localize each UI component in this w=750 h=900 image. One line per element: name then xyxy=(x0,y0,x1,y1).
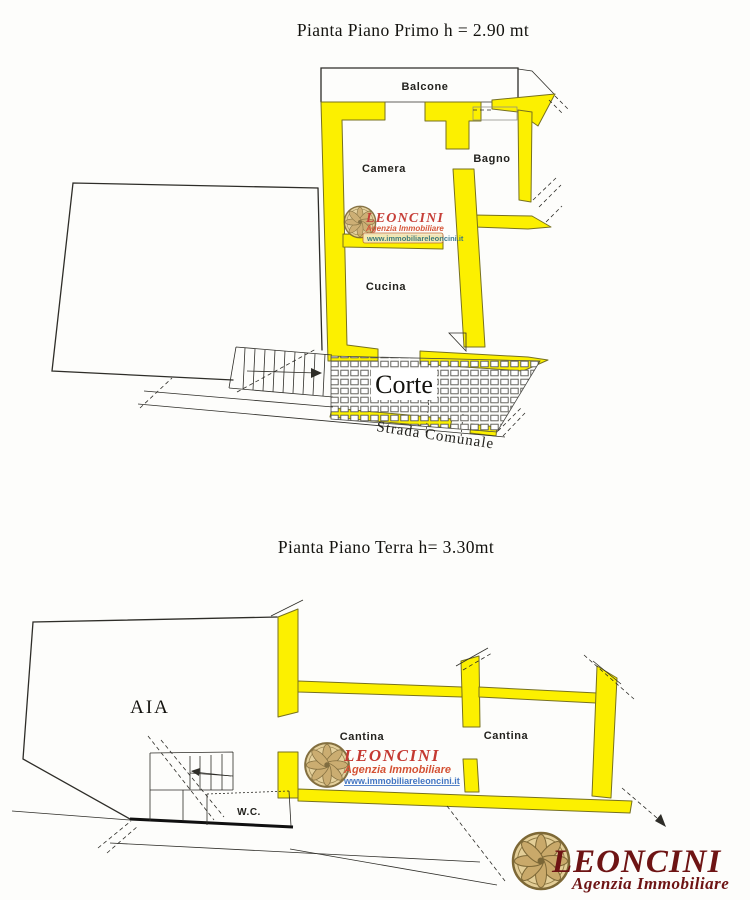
room-label-corte: Corte xyxy=(375,370,433,399)
staircase-ground-floor xyxy=(148,736,233,821)
room-label-cantina-1: Cantina xyxy=(340,731,385,743)
room-label-wc: W.C. xyxy=(237,807,261,818)
rosette-logo-icon xyxy=(305,743,349,787)
room-label-cucina: Cucina xyxy=(366,281,407,293)
ground-floor-title: Pianta Piano Terra h= 3.30mt xyxy=(278,537,494,557)
room-label-aia: AIA xyxy=(130,697,170,718)
room-label-balcone: Balcone xyxy=(402,81,449,93)
room-label-cantina-2: Cantina xyxy=(484,730,529,742)
first-floor-title: Pianta Piano Primo h = 2.90 mt xyxy=(297,20,529,40)
watermark-tagline: Agenzia Immobiliare xyxy=(343,764,451,776)
watermark-website: www.immobiliareleoncini.it xyxy=(366,234,464,243)
watermark-first-floor: LEONCINI Agenzia Immobiliare www.immobil… xyxy=(344,206,464,243)
room-label-camera: Camera xyxy=(362,163,406,175)
watermark-website: www.immobiliareleoncini.it xyxy=(343,776,460,786)
watermark-tagline: Agenzia Immobiliare xyxy=(365,224,444,233)
room-label-bagno: Bagno xyxy=(473,153,510,165)
scanned-floorplan-page: Pianta Piano Primo h = 2.90 mt xyxy=(0,0,750,900)
agency-logo: LEONCINI Agenzia Immobiliare xyxy=(513,833,729,893)
first-floor-plan: Pianta Piano Primo h = 2.90 mt xyxy=(52,20,568,453)
watermark-name: LEONCINI xyxy=(343,746,440,765)
floorplan-drawing: Pianta Piano Primo h = 2.90 mt xyxy=(0,0,750,900)
watermark-ground-floor: LEONCINI Agenzia Immobiliare www.immobil… xyxy=(305,743,460,787)
ground-floor-plan: Pianta Piano Terra h= 3.30mt xyxy=(12,537,666,885)
agency-logo-tagline: Agenzia Immobiliare xyxy=(571,874,729,893)
